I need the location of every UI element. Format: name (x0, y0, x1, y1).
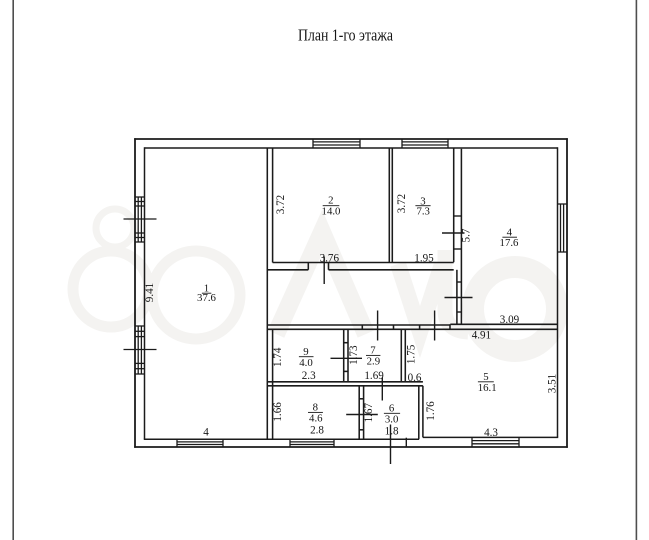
svg-text:37.6: 37.6 (197, 292, 216, 304)
svg-text:1.75: 1.75 (405, 344, 417, 364)
svg-text:2.9: 2.9 (367, 356, 381, 368)
svg-text:1.66: 1.66 (272, 402, 284, 422)
svg-text:0.6: 0.6 (408, 372, 422, 384)
svg-text:1.8: 1.8 (385, 426, 399, 438)
svg-text:7: 7 (370, 345, 376, 357)
svg-text:План 1-го этажа: План 1-го этажа (298, 25, 394, 44)
svg-text:3.51: 3.51 (546, 374, 558, 393)
svg-text:3.09: 3.09 (500, 314, 520, 326)
svg-text:5.7: 5.7 (461, 228, 473, 242)
svg-text:1.69: 1.69 (364, 370, 384, 382)
svg-text:14.0: 14.0 (322, 206, 341, 218)
svg-text:1.73: 1.73 (348, 345, 360, 365)
svg-text:7.3: 7.3 (416, 206, 430, 218)
svg-text:9.41: 9.41 (144, 283, 156, 302)
svg-text:3.72: 3.72 (275, 195, 287, 214)
svg-text:4.3: 4.3 (484, 427, 498, 439)
svg-text:16.1: 16.1 (478, 382, 497, 394)
svg-text:4: 4 (203, 427, 209, 439)
svg-text:3.72: 3.72 (396, 194, 408, 213)
svg-text:1.67: 1.67 (363, 403, 375, 423)
svg-text:4.91: 4.91 (472, 330, 491, 342)
svg-text:1.95: 1.95 (414, 253, 434, 265)
svg-text:4.0: 4.0 (299, 357, 313, 369)
svg-text:4.6: 4.6 (309, 413, 323, 425)
svg-text:17.6: 17.6 (500, 237, 519, 249)
svg-text:2.8: 2.8 (310, 425, 324, 437)
svg-text:3.0: 3.0 (385, 413, 399, 425)
svg-text:1.76: 1.76 (425, 401, 437, 421)
svg-text:2.3: 2.3 (302, 370, 316, 382)
svg-text:3.76: 3.76 (320, 253, 340, 265)
svg-text:1.74: 1.74 (272, 347, 284, 367)
